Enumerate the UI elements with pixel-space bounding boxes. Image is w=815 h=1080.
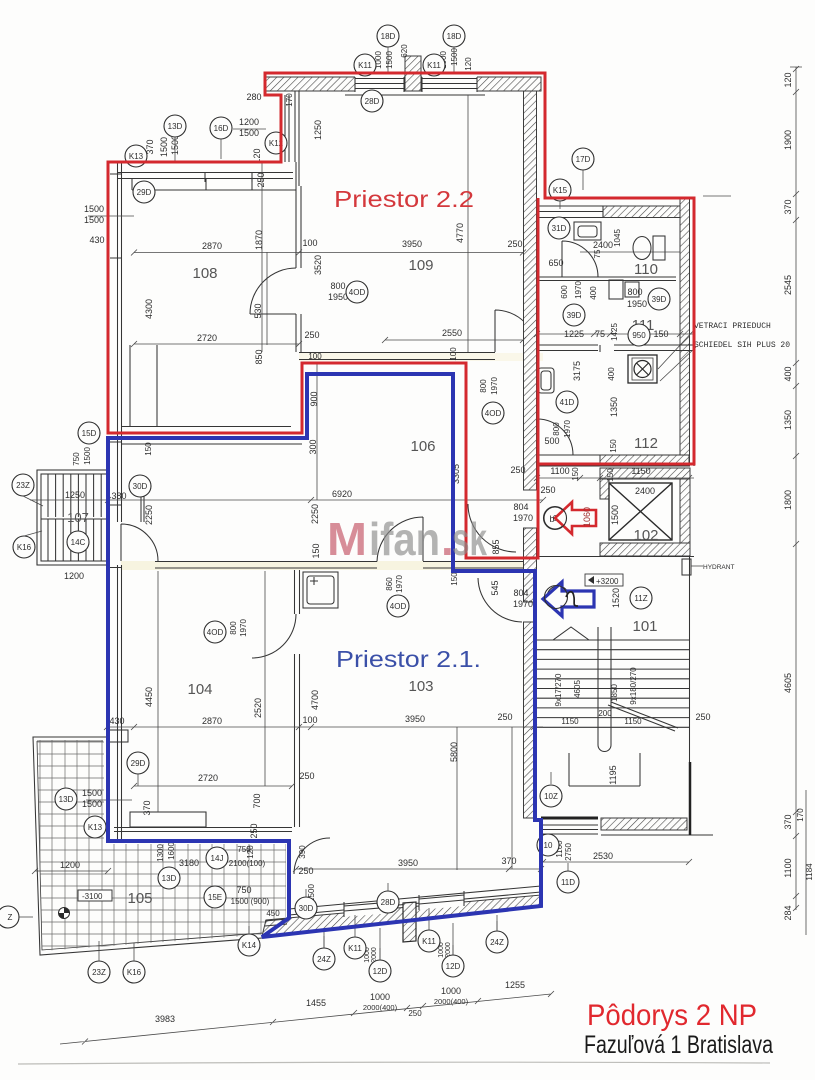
- svg-text:18D: 18D: [447, 32, 462, 41]
- svg-text:2400: 2400: [593, 240, 613, 250]
- svg-text:24Z: 24Z: [317, 955, 331, 964]
- svg-text:4300: 4300: [144, 299, 154, 319]
- svg-text:30D: 30D: [299, 904, 314, 913]
- svg-text:1150: 1150: [631, 466, 650, 476]
- svg-text:2870: 2870: [202, 241, 222, 251]
- svg-text:1045: 1045: [613, 229, 622, 247]
- svg-text:380: 380: [111, 491, 126, 501]
- svg-text:120: 120: [783, 72, 793, 87]
- svg-text:1250: 1250: [65, 490, 85, 500]
- svg-text:150: 150: [144, 442, 153, 456]
- svg-text:1970: 1970: [513, 599, 533, 609]
- svg-text:Priestor 2.1.: Priestor 2.1.: [336, 646, 481, 672]
- svg-text:170: 170: [285, 93, 294, 107]
- svg-text:106: 106: [410, 438, 435, 455]
- svg-text:1200: 1200: [60, 860, 80, 870]
- svg-text:30D: 30D: [133, 482, 148, 491]
- svg-text:390: 390: [298, 845, 307, 859]
- svg-text:1350: 1350: [609, 397, 619, 417]
- svg-text:2550: 2550: [442, 328, 462, 338]
- svg-text:1150: 1150: [561, 717, 579, 726]
- svg-text:Fazuľová 1 Bratislava: Fazuľová 1 Bratislava: [584, 1031, 773, 1059]
- svg-text:1970: 1970: [490, 377, 499, 395]
- svg-text:3520: 3520: [313, 255, 323, 275]
- svg-text:1500: 1500: [84, 215, 104, 225]
- svg-text:K11: K11: [422, 937, 436, 946]
- svg-text:1300: 1300: [156, 844, 165, 862]
- svg-text:1500: 1500: [82, 788, 102, 798]
- svg-text:400: 400: [607, 367, 616, 381]
- svg-text:101: 101: [632, 618, 657, 635]
- svg-text:1425: 1425: [610, 323, 619, 341]
- svg-text:250: 250: [507, 239, 522, 249]
- svg-text:2870: 2870: [202, 716, 222, 726]
- svg-text:1950: 1950: [328, 292, 348, 302]
- svg-text:400: 400: [783, 366, 793, 381]
- svg-text:1150: 1150: [624, 717, 642, 726]
- svg-text:2520: 2520: [253, 698, 263, 718]
- svg-text:800: 800: [627, 287, 642, 297]
- svg-text:4OD: 4OD: [485, 409, 502, 418]
- svg-text:250: 250: [408, 1009, 422, 1018]
- svg-text:10Z: 10Z: [544, 792, 558, 801]
- svg-text:3950: 3950: [405, 714, 425, 724]
- svg-text:1500: 1500: [610, 505, 620, 525]
- svg-text:39D: 39D: [652, 295, 667, 304]
- svg-text:1184: 1184: [805, 863, 814, 881]
- svg-text:ifan: ifan: [369, 513, 440, 565]
- svg-text:2100(100): 2100(100): [229, 859, 266, 868]
- svg-text:4605: 4605: [783, 673, 793, 693]
- svg-text:sk: sk: [452, 513, 487, 565]
- svg-text:804: 804: [513, 588, 528, 598]
- svg-text:150: 150: [571, 467, 580, 481]
- svg-text:1500: 1500: [385, 51, 394, 69]
- svg-text:13D: 13D: [168, 122, 183, 131]
- svg-text:200: 200: [598, 709, 612, 718]
- svg-text:Pôdorys 2 NP: Pôdorys 2 NP: [587, 999, 757, 1032]
- svg-text:2545: 2545: [783, 275, 793, 295]
- svg-text:108: 108: [192, 265, 217, 282]
- svg-text:2530: 2530: [593, 851, 613, 861]
- svg-text:4450: 4450: [144, 687, 154, 707]
- svg-text:700: 700: [252, 793, 262, 808]
- svg-text:VETRACI PRIEDUCH: VETRACI PRIEDUCH: [694, 322, 771, 331]
- svg-text:+3200: +3200: [596, 577, 619, 586]
- svg-text:370: 370: [783, 199, 793, 214]
- svg-text:400: 400: [589, 286, 598, 300]
- svg-text:18D: 18D: [381, 32, 396, 41]
- svg-text:9x180/270: 9x180/270: [629, 667, 638, 705]
- svg-text:950: 950: [632, 331, 646, 340]
- svg-text:4OD: 4OD: [390, 602, 407, 611]
- svg-text:HYDRANT: HYDRANT: [703, 564, 734, 571]
- svg-text:105: 105: [127, 890, 152, 907]
- svg-text:1225: 1225: [564, 329, 584, 339]
- svg-text:750: 750: [72, 452, 81, 466]
- svg-text:14J: 14J: [211, 854, 224, 863]
- svg-text:1500: 1500: [450, 48, 459, 66]
- svg-text:100: 100: [449, 347, 458, 361]
- svg-text:75: 75: [593, 249, 602, 258]
- svg-text:104: 104: [187, 681, 212, 698]
- svg-text:1500 (900): 1500 (900): [231, 897, 270, 906]
- svg-text:1000: 1000: [370, 992, 390, 1002]
- svg-text:112: 112: [634, 435, 658, 452]
- svg-text:1800: 1800: [783, 490, 793, 510]
- svg-text:800: 800: [330, 281, 345, 291]
- svg-text:3175: 3175: [572, 361, 582, 381]
- svg-text:15E: 15E: [208, 893, 222, 902]
- svg-text:250: 250: [299, 771, 314, 781]
- svg-text:12D: 12D: [446, 962, 461, 971]
- svg-text:1850: 1850: [610, 684, 619, 702]
- svg-text:370: 370: [142, 800, 152, 815]
- svg-text:K16: K16: [127, 968, 142, 977]
- svg-text:300: 300: [308, 439, 318, 454]
- svg-text:1100: 1100: [550, 466, 569, 476]
- svg-text:2250: 2250: [144, 505, 154, 525]
- svg-text:5800: 5800: [449, 742, 459, 762]
- svg-text:109: 109: [408, 257, 433, 274]
- svg-text:28D: 28D: [365, 97, 380, 106]
- svg-text:M: M: [327, 513, 367, 565]
- svg-text:b: b: [549, 514, 554, 524]
- svg-text:K11: K11: [427, 61, 441, 70]
- svg-text:450: 450: [266, 909, 280, 918]
- svg-text:1500: 1500: [239, 128, 259, 138]
- svg-text:107: 107: [67, 510, 89, 525]
- svg-text:1200: 1200: [239, 117, 259, 127]
- svg-text:250: 250: [695, 712, 710, 722]
- svg-text:1250: 1250: [313, 120, 323, 140]
- svg-text:150: 150: [606, 468, 615, 482]
- svg-text:110: 110: [634, 261, 658, 278]
- svg-text:250: 250: [510, 465, 525, 475]
- svg-text:1500: 1500: [83, 447, 92, 465]
- svg-text:370: 370: [501, 856, 516, 866]
- svg-text:K14: K14: [242, 941, 257, 950]
- svg-text:1870: 1870: [254, 230, 264, 250]
- svg-text:860: 860: [385, 577, 394, 591]
- svg-text:4OD: 4OD: [349, 288, 366, 297]
- svg-text:9x17/270: 9x17/270: [554, 673, 563, 706]
- svg-text:800: 800: [552, 422, 561, 436]
- svg-text:1100: 1100: [783, 858, 793, 877]
- svg-text:545: 545: [490, 580, 500, 595]
- svg-text:23Z: 23Z: [92, 968, 106, 977]
- svg-text:100: 100: [302, 715, 317, 725]
- svg-text:3180: 3180: [179, 858, 199, 868]
- svg-text:2400: 2400: [635, 486, 655, 496]
- svg-text:250: 250: [497, 712, 512, 722]
- svg-text:750: 750: [237, 845, 251, 854]
- svg-text:1970: 1970: [563, 420, 572, 438]
- svg-text:41D: 41D: [560, 398, 575, 407]
- svg-text:1500: 1500: [159, 137, 169, 157]
- svg-text:11D: 11D: [561, 878, 575, 887]
- svg-text:250: 250: [304, 330, 319, 340]
- svg-text:2250: 2250: [310, 504, 320, 524]
- svg-text:23Z: 23Z: [16, 481, 30, 490]
- svg-text:1500: 1500: [84, 204, 104, 214]
- svg-text:855: 855: [491, 539, 501, 554]
- svg-text:150: 150: [609, 439, 618, 453]
- svg-text:804: 804: [513, 502, 528, 512]
- svg-text:850: 850: [254, 349, 264, 364]
- svg-text:1520: 1520: [611, 588, 621, 608]
- svg-text:K13: K13: [129, 152, 144, 161]
- svg-text:1900: 1900: [783, 130, 793, 150]
- svg-text:102: 102: [633, 527, 658, 544]
- svg-text:31D: 31D: [552, 224, 567, 233]
- svg-text:75: 75: [595, 329, 605, 339]
- svg-text:-3100: -3100: [82, 892, 103, 901]
- svg-text:4700: 4700: [310, 690, 320, 710]
- svg-text:1970: 1970: [574, 281, 583, 299]
- svg-text:1500: 1500: [82, 799, 102, 809]
- svg-text:K16: K16: [17, 543, 32, 552]
- svg-text:6920: 6920: [332, 489, 352, 499]
- svg-text:250: 250: [540, 485, 555, 495]
- svg-text:17D: 17D: [576, 155, 591, 164]
- svg-text:39D: 39D: [567, 311, 582, 320]
- svg-text:600: 600: [560, 285, 569, 299]
- svg-text:120: 120: [464, 57, 473, 71]
- svg-text:280: 280: [246, 92, 261, 102]
- svg-text:24Z: 24Z: [490, 938, 504, 947]
- svg-text:2000(400): 2000(400): [434, 997, 469, 1006]
- svg-text:1970: 1970: [239, 619, 248, 637]
- svg-text:11Z: 11Z: [634, 594, 647, 603]
- svg-text:620: 620: [400, 44, 409, 58]
- svg-text:28D: 28D: [381, 898, 396, 907]
- svg-text:3950: 3950: [398, 858, 418, 868]
- svg-text:Z: Z: [8, 913, 13, 922]
- svg-text:1195: 1195: [608, 765, 618, 784]
- svg-text:1255: 1255: [505, 980, 525, 990]
- svg-text:650: 650: [548, 258, 563, 268]
- svg-text:150: 150: [311, 543, 321, 558]
- svg-text:800: 800: [479, 379, 488, 393]
- svg-text:K11: K11: [358, 61, 372, 70]
- svg-text:2000(400): 2000(400): [363, 1003, 398, 1012]
- svg-text:530: 530: [253, 303, 263, 318]
- svg-text:13D: 13D: [162, 874, 177, 883]
- svg-text:150: 150: [653, 329, 668, 339]
- svg-text:12D: 12D: [373, 967, 388, 976]
- svg-text:SCHIEDEL SIH PLUS 20: SCHIEDEL SIH PLUS 20: [694, 341, 790, 350]
- svg-text:1000: 1000: [441, 986, 461, 996]
- svg-text:14C: 14C: [71, 538, 86, 547]
- svg-text:1970: 1970: [395, 575, 404, 593]
- svg-text:250: 250: [298, 866, 313, 876]
- svg-text:800: 800: [229, 621, 238, 635]
- svg-text:K15: K15: [553, 186, 568, 195]
- svg-text:900: 900: [309, 391, 319, 406]
- svg-text:284: 284: [783, 905, 793, 920]
- svg-text:500: 500: [544, 436, 559, 446]
- svg-text:250: 250: [256, 172, 266, 187]
- svg-text:1600: 1600: [167, 842, 176, 860]
- svg-text:4770: 4770: [455, 223, 465, 243]
- svg-text:10: 10: [544, 841, 553, 850]
- svg-text:430: 430: [109, 716, 124, 726]
- svg-text:1950: 1950: [627, 299, 647, 309]
- svg-text:15D: 15D: [82, 429, 97, 438]
- svg-text:2720: 2720: [197, 333, 217, 343]
- svg-text:1200: 1200: [64, 571, 84, 581]
- svg-text:750: 750: [236, 885, 251, 895]
- svg-text:2720: 2720: [198, 773, 218, 783]
- svg-text:K13: K13: [88, 823, 103, 832]
- svg-text:430: 430: [89, 235, 104, 245]
- svg-text:Priestor 2.2: Priestor 2.2: [334, 186, 474, 212]
- svg-text:100: 100: [308, 352, 322, 361]
- svg-text:1350: 1350: [783, 410, 793, 430]
- svg-text:3950: 3950: [402, 239, 422, 249]
- svg-text:100: 100: [302, 238, 317, 248]
- svg-text:16D: 16D: [214, 124, 229, 133]
- svg-text:2750: 2750: [564, 843, 573, 861]
- svg-text:4OD: 4OD: [207, 628, 224, 637]
- svg-text:1970: 1970: [513, 513, 533, 523]
- svg-text:3983: 3983: [155, 1014, 175, 1024]
- svg-text:370: 370: [783, 814, 793, 829]
- svg-text:1060: 1060: [582, 507, 592, 527]
- svg-text:29D: 29D: [137, 188, 152, 197]
- svg-text:250: 250: [249, 823, 259, 838]
- svg-text:K11: K11: [348, 944, 362, 953]
- svg-text:170: 170: [796, 808, 805, 822]
- svg-text:103: 103: [408, 678, 433, 695]
- svg-text:4605: 4605: [573, 680, 582, 698]
- svg-text:1455: 1455: [306, 998, 326, 1008]
- svg-text:29D: 29D: [131, 759, 146, 768]
- svg-text:13D: 13D: [59, 795, 74, 804]
- svg-text:150: 150: [450, 572, 459, 586]
